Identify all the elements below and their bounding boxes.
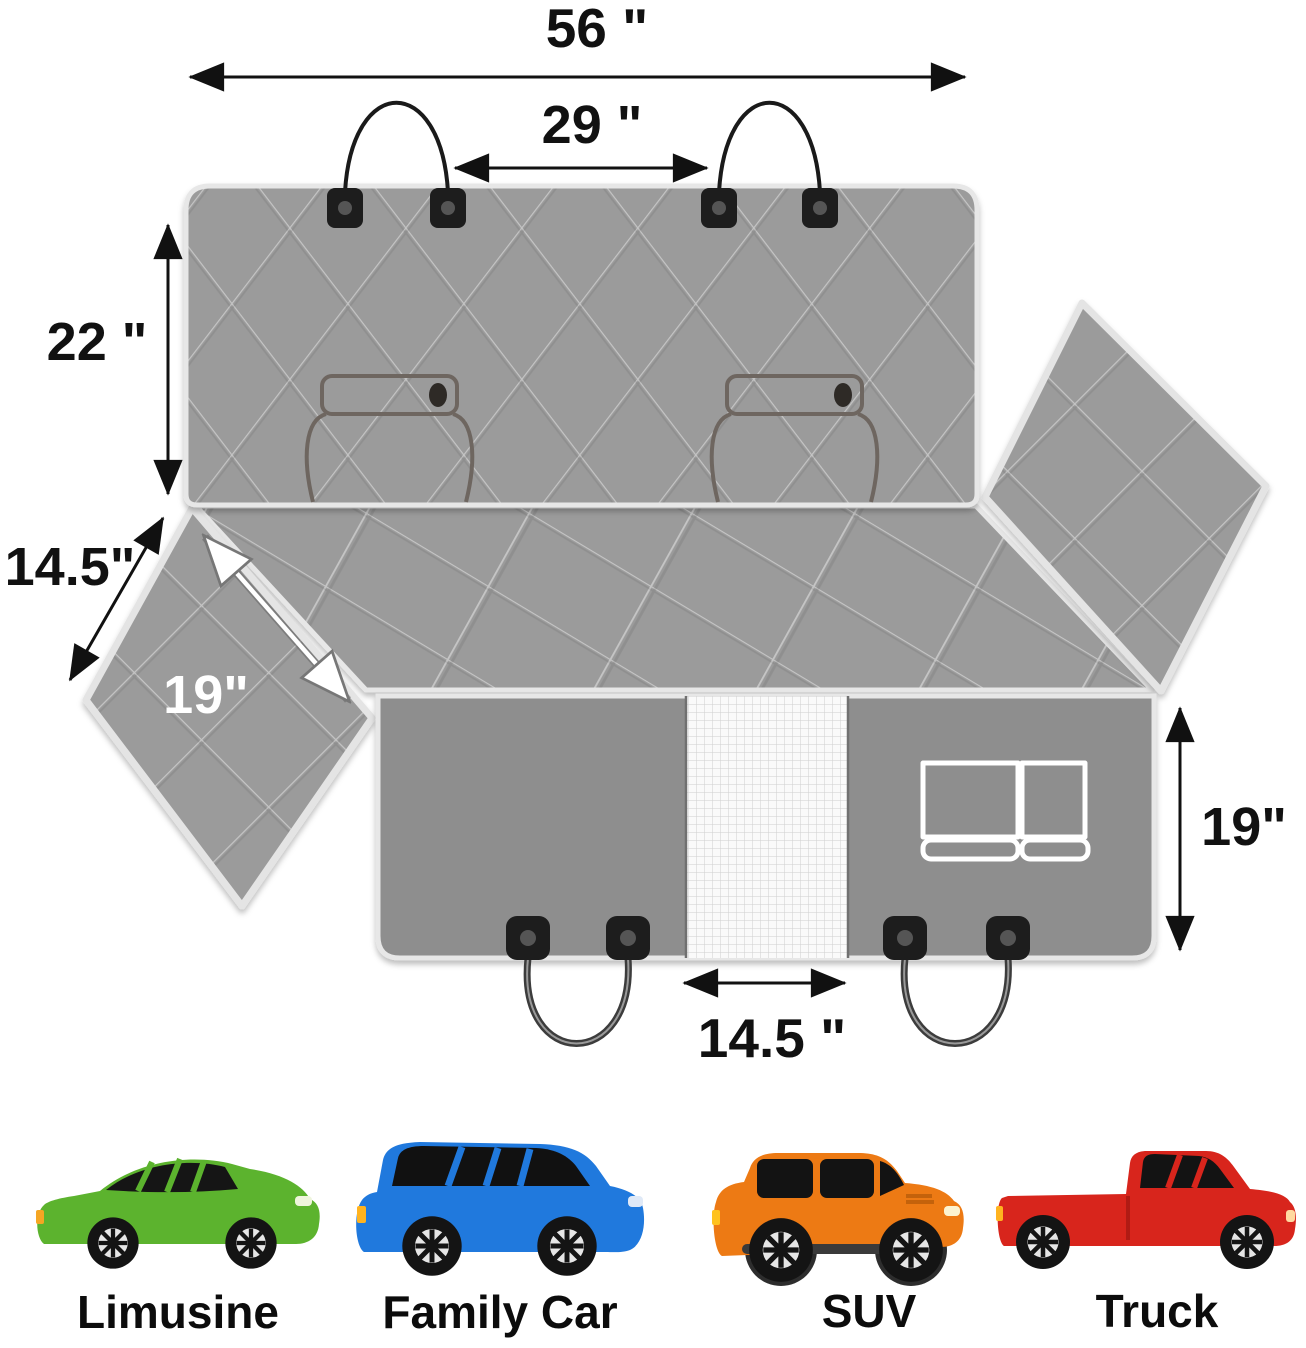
dim-total-width: 56 " (190, 0, 965, 77)
car-suv (712, 1153, 964, 1286)
wheel (87, 1217, 138, 1268)
dimension-label: 14.5" (5, 537, 136, 597)
wheel (402, 1216, 461, 1275)
front-drop-panel (378, 696, 1154, 958)
headlight (1286, 1210, 1295, 1222)
dim-headrest-gap: 29 " (455, 95, 707, 168)
car-label-family-car: Family Car (382, 1286, 617, 1338)
wheel (879, 1218, 943, 1282)
side-marker-light (712, 1210, 720, 1225)
dimension-label: 22 " (47, 312, 148, 372)
dimension-label: 19" (1201, 797, 1287, 857)
mesh-window (686, 696, 848, 958)
dimension-label: 14.5 " (698, 1007, 846, 1069)
dim-front-panel-height: 19" (1180, 708, 1287, 950)
dimension-label: 19" (163, 665, 249, 725)
side-marker-light (36, 1210, 44, 1224)
wheel (1220, 1215, 1274, 1269)
headlight (295, 1196, 312, 1206)
seat-panel (196, 506, 1152, 690)
wheel (749, 1218, 813, 1282)
side-marker-light (996, 1206, 1003, 1221)
dim-backrest-height: 22 " (47, 225, 168, 494)
car-truck (996, 1151, 1296, 1269)
car-limusine (36, 1159, 320, 1269)
headlight (944, 1206, 960, 1216)
wheel (1016, 1215, 1070, 1269)
headlight (628, 1196, 643, 1207)
car-label-suv: SUV (822, 1285, 917, 1337)
seat-cover-diagram-svg: 56 " 29 " 22 " 14.5" 19" 14.5 " 19" Limu… (0, 0, 1306, 1348)
dimension-label: 56 " (546, 0, 649, 59)
car-family-car (356, 1142, 644, 1276)
product-dimension-diagram: 56 " 29 " 22 " 14.5" 19" 14.5 " 19" Limu… (0, 0, 1306, 1348)
car-label-limusine: Limusine (77, 1286, 279, 1338)
car-window (757, 1159, 813, 1198)
car-label-truck: Truck (1096, 1285, 1219, 1337)
wheel (225, 1217, 276, 1268)
dimension-label: 29 " (542, 95, 643, 155)
side-marker-light (357, 1206, 366, 1223)
car-window (820, 1159, 874, 1198)
dim-mesh-width: 14.5 " (684, 983, 846, 1069)
backrest-panel (186, 186, 977, 505)
wheel (537, 1216, 596, 1275)
